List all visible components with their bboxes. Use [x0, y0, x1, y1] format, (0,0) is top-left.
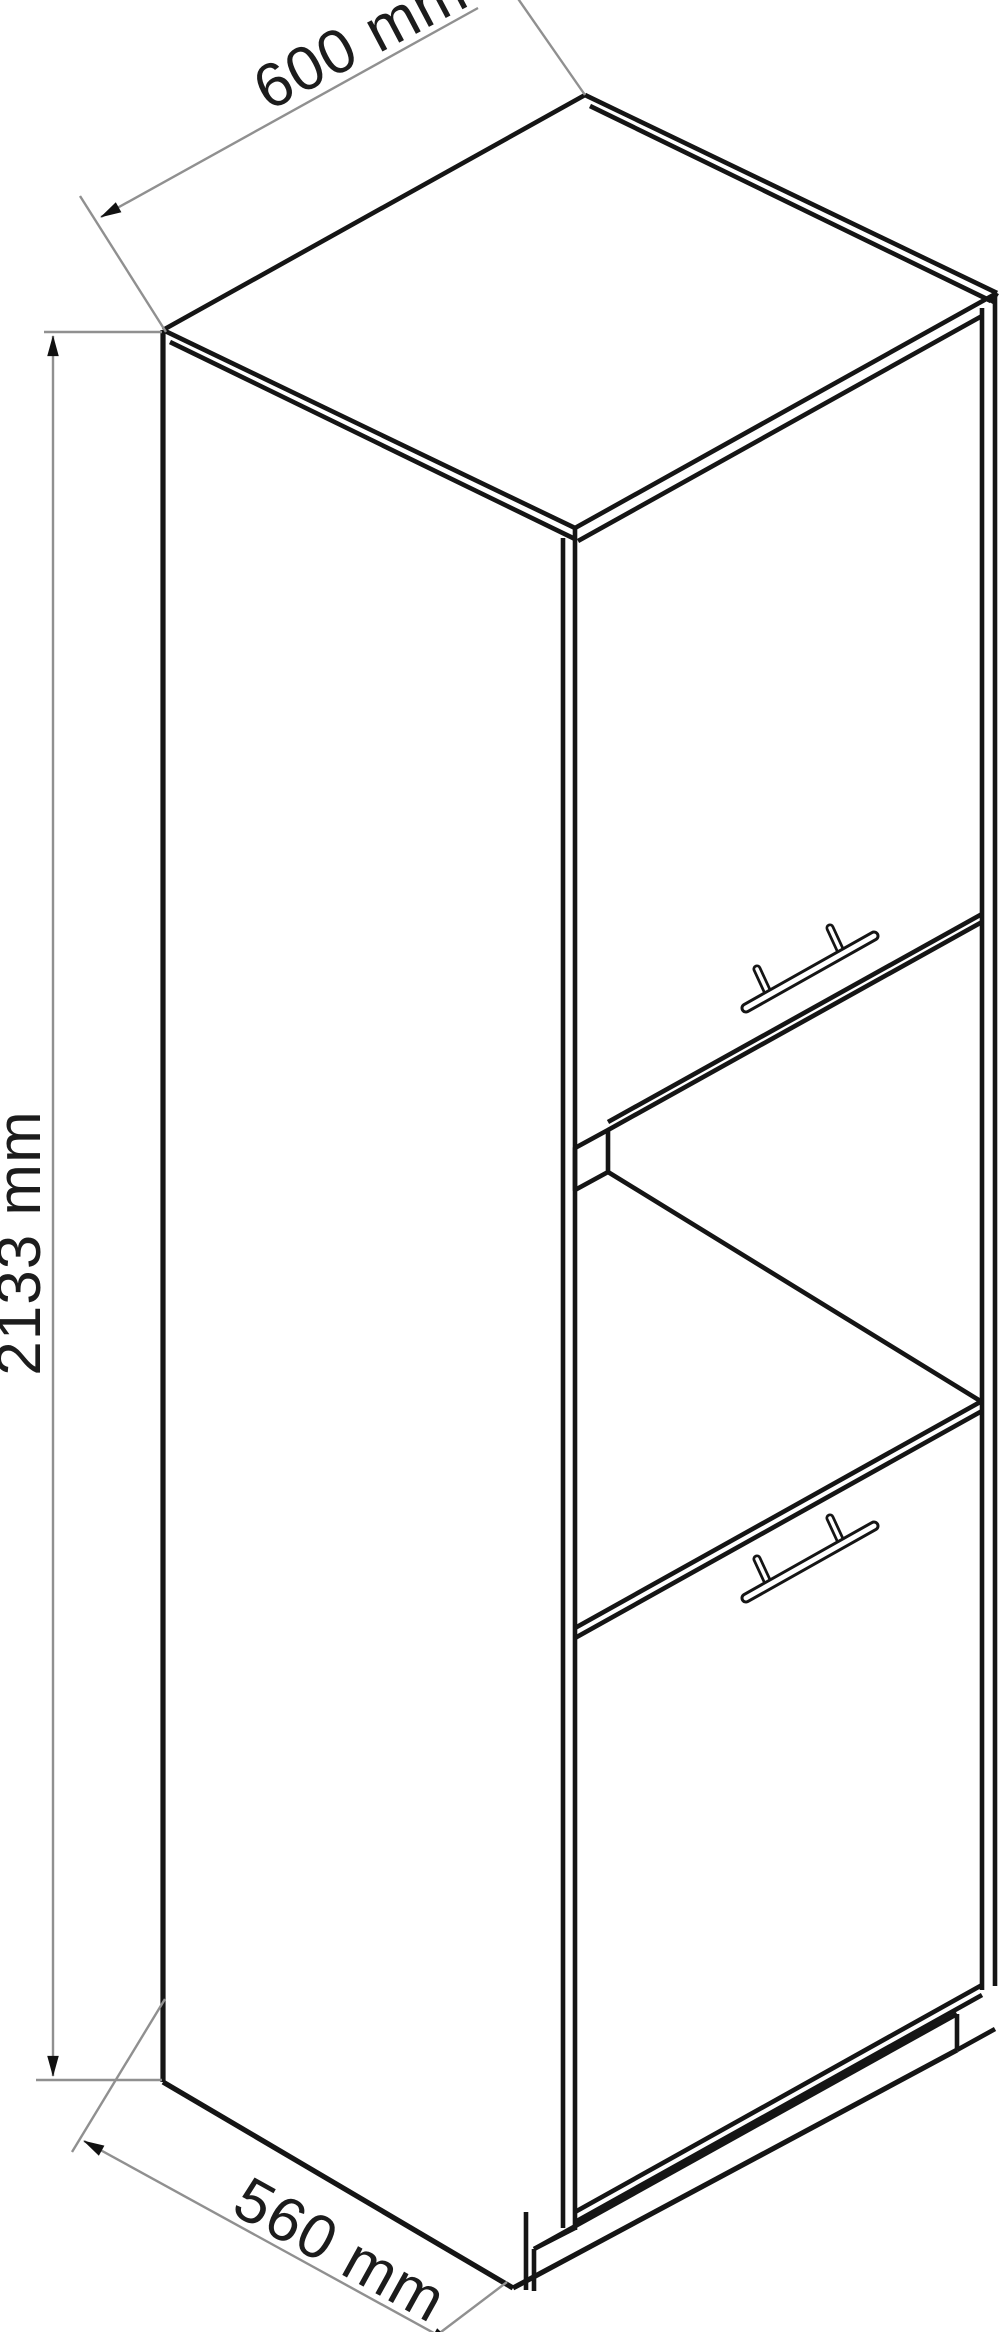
handle-lower-bar-fill: [746, 1526, 874, 1598]
handle-upper: [746, 928, 874, 1008]
side-top-edge-inner: [170, 342, 575, 539]
plinth-lines: [513, 2014, 995, 2291]
plinth-top-edge: [534, 2014, 957, 2249]
plinth-bottom-edge: [513, 2050, 957, 2288]
upper-door-top-edge: [578, 316, 982, 541]
dim-depth-ext-left: [72, 1999, 165, 2152]
dim-width-ext-right: [505, 0, 585, 95]
cavity-floor-right-line: [608, 1172, 982, 1402]
dim-depth: 560 mm: [72, 1999, 507, 2332]
cabinet-technical-drawing: 600 mm 2133 mm 560 mm: [0, 0, 1000, 2332]
front-right-edges: [982, 297, 995, 1990]
dim-width-ext-left: [80, 196, 166, 332]
upper-door-bottom-edge: [608, 914, 982, 1122]
top-right-edge: [585, 95, 997, 293]
plinth-bottom-tail: [957, 2029, 995, 2050]
upper-door-bottom-edge-inner: [608, 922, 982, 1130]
dim-width-label: 600 mm: [243, 0, 479, 124]
shelf-front-cross-section: [575, 1130, 608, 1190]
dim-height-label: 2133 mm: [0, 1110, 54, 1375]
top-face-edges: [163, 95, 997, 539]
top-back-edge: [163, 95, 585, 330]
upper-door-edges: [578, 316, 982, 1130]
side-panel-edges: [163, 330, 575, 2288]
lower-door-top-edge: [575, 1401, 982, 1628]
lower-door-bottom-edge: [575, 1985, 982, 2212]
top-right-edge-inner: [590, 106, 991, 301]
lower-door-bottom-edge-inner: [575, 1995, 982, 2222]
dim-width: 600 mm: [80, 0, 585, 332]
lower-door-edges: [575, 1401, 982, 2222]
dim-height: 2133 mm: [0, 332, 162, 2080]
lower-door-top-edge-inner: [575, 1411, 982, 1638]
oven-cavity-lines: [575, 1130, 982, 1402]
handle-upper-bar-fill: [746, 936, 874, 1008]
drawing-canvas: 600 mm 2133 mm 560 mm: [0, 0, 1000, 2332]
dim-depth-label: 560 mm: [223, 2164, 458, 2332]
front-top-edge: [575, 293, 997, 528]
side-top-edge: [163, 330, 575, 528]
dim-depth-ext-right: [441, 2282, 507, 2332]
